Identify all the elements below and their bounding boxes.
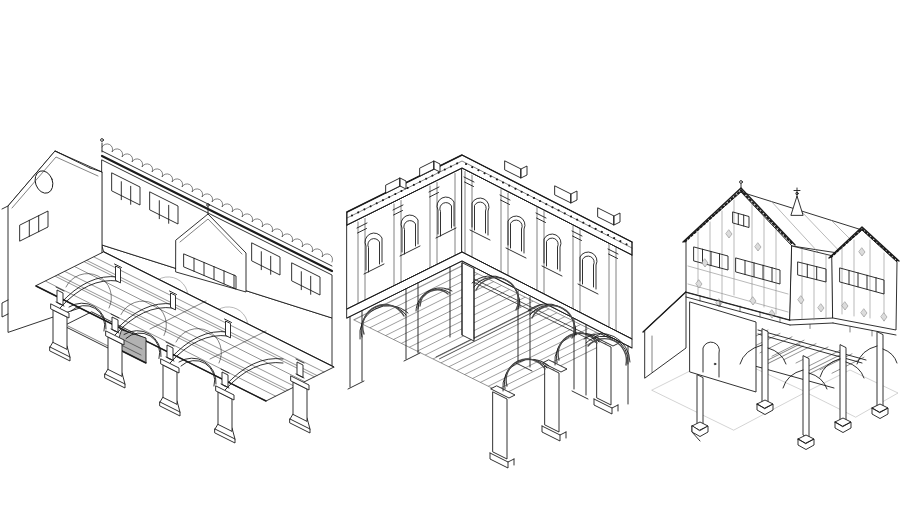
finial-knob: [101, 139, 104, 142]
ceiling-beam: [436, 305, 544, 359]
wing-wall: [790, 246, 833, 320]
interior-pier: [594, 334, 619, 414]
timber-post: [840, 345, 846, 425]
interior-pier: [542, 360, 567, 441]
finial-spire: [791, 188, 803, 215]
illustration-canvas: [0, 0, 900, 524]
figure-timber-hall: [643, 181, 899, 450]
timber-post: [762, 329, 768, 407]
timber-post: [697, 375, 703, 429]
lean-to-wing: [643, 290, 688, 378]
pad-stones: [692, 400, 888, 450]
ground-plot-lines: [652, 354, 898, 430]
interior-pier: [490, 386, 515, 468]
figure-arcaded-hall: [2, 139, 334, 443]
timber-post: [877, 332, 883, 411]
architectural-drawings: [0, 0, 900, 524]
figure-classical-hall: [347, 155, 632, 468]
timber-post: [803, 356, 809, 438]
ground-storey: [652, 302, 898, 450]
